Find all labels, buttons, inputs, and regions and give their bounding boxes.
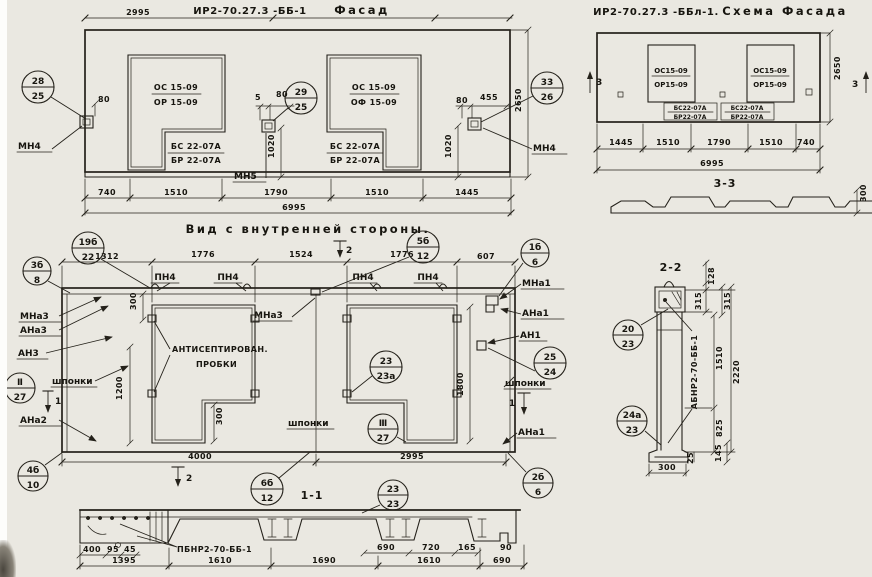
section-1-1-label: ПБНР2-70-ББ-1 (120, 524, 252, 554)
svg-text:1790: 1790 (264, 188, 288, 197)
svg-text:23: 23 (387, 500, 400, 510)
scheme-window-2: ОС15-09 ОР15-09 (747, 45, 794, 102)
callout-20-23: 20 23 (613, 309, 668, 350)
callout-29-25: 29 25 (273, 82, 317, 121)
scheme-dim-2650: 2650 (820, 30, 842, 125)
svg-text:4б: 4б (27, 465, 40, 476)
callout-2b-6: 2б 6 (508, 453, 553, 498)
svg-text:1200: 1200 (115, 376, 124, 400)
svg-text:1б: 1б (529, 242, 542, 253)
section-marker-1-right: 1 (509, 393, 530, 414)
svg-text:23а: 23а (377, 372, 396, 382)
svg-text:1510: 1510 (164, 188, 188, 197)
svg-text:2: 2 (186, 474, 192, 484)
svg-text:720: 720 (422, 543, 440, 552)
label-mna1: МНа1 (522, 279, 551, 289)
section-3-3-profile (611, 197, 872, 213)
svg-text:45: 45 (124, 545, 136, 554)
inner-title: Вид с внутренней стороны. (186, 222, 431, 236)
callout-28-25: 28 25 (22, 71, 86, 119)
facade-code: ИР2-70.27.3 -ББ-1 (193, 6, 306, 17)
svg-text:1445: 1445 (609, 138, 633, 147)
svg-text:2б: 2б (532, 472, 545, 483)
label-shponki-left: шпонки (52, 377, 93, 387)
inner-an1-anchor (477, 341, 486, 350)
left-labels: МНа3 АНа3 АН3 Ⅱ 27 шпонки 1 АНа2 (5, 297, 128, 441)
svg-text:23: 23 (387, 485, 400, 495)
facade-block1-label: БС 22-07А БР 22-07А (168, 142, 224, 165)
svg-text:300: 300 (658, 463, 676, 472)
facade-dim-80-left: 80 (98, 95, 110, 104)
svg-text:6б: 6б (261, 478, 274, 489)
svg-text:24а: 24а (623, 411, 642, 421)
svg-text:300: 300 (129, 292, 138, 310)
svg-text:1610: 1610 (417, 556, 441, 565)
section-marker-3-left: 3 (590, 72, 602, 93)
svg-text:300: 300 (859, 184, 868, 202)
section-2-2-loop (664, 282, 674, 288)
scheme-block-label-2: БС22-07А БР22-07А (721, 103, 774, 121)
svg-text:90: 90 (500, 543, 512, 552)
svg-text:ПРОБКИ: ПРОБКИ (196, 360, 237, 369)
svg-text:29: 29 (295, 88, 308, 98)
label-mn4-right: МН4 (533, 144, 556, 154)
svg-text:128: 128 (707, 267, 716, 285)
svg-text:ПН4: ПН4 (352, 273, 373, 283)
svg-text:690: 690 (377, 543, 395, 552)
scheme-window-1: ОС15-09 ОР15-09 (648, 45, 695, 102)
svg-text:23: 23 (626, 426, 639, 436)
facade-block2-label: БС 22-07А БР 22-07А (327, 142, 383, 165)
svg-text:БС22-07А: БС22-07А (674, 105, 707, 112)
corner-smudge (0, 540, 16, 577)
scheme-title: Схема Фасада (722, 4, 848, 18)
svg-text:22: 22 (82, 253, 95, 263)
label-shponki-mid: шпонки (288, 419, 329, 429)
svg-text:1: 1 (509, 399, 515, 409)
svg-text:25: 25 (295, 103, 308, 113)
label-ana1-bottom: АНа1 (518, 428, 545, 438)
facade-win2-label-bottom: ОФ 15-09 (351, 98, 397, 107)
svg-text:27: 27 (14, 393, 27, 403)
svg-text:1776: 1776 (191, 250, 215, 259)
svg-text:165: 165 (458, 543, 476, 552)
svg-text:20: 20 (622, 325, 635, 335)
facade-dim-6995: 6995 (282, 203, 306, 212)
svg-text:315: 315 (694, 292, 703, 310)
svg-text:12: 12 (261, 494, 274, 504)
facade-dim-455: 455 (480, 93, 498, 102)
svg-text:27: 27 (377, 434, 390, 444)
label-mna3-left: МНа3 (20, 312, 49, 322)
facade-dim-5: 5 (255, 93, 261, 102)
svg-text:БС 22-07А: БС 22-07А (171, 142, 222, 151)
section-marker-2-top: 2 (334, 241, 352, 257)
svg-text:5б: 5б (417, 236, 430, 247)
svg-text:1020: 1020 (267, 134, 276, 158)
section-2-2-foot (649, 450, 688, 462)
scheme-anchor-dots (618, 89, 812, 97)
facade-win1-label-bottom: ОР 15-09 (154, 98, 198, 107)
svg-text:1524: 1524 (289, 250, 313, 259)
svg-text:1510: 1510 (759, 138, 783, 147)
inner-view: Вид с внутренней стороны. 1312 1776 1524… (5, 222, 566, 505)
svg-text:2650: 2650 (833, 56, 842, 80)
inner-dim-1800: 1800 (456, 304, 473, 444)
label-ana3-left: АНа3 (20, 326, 47, 336)
svg-text:ОС15-09: ОС15-09 (753, 67, 787, 75)
svg-text:19б: 19б (79, 237, 98, 248)
svg-text:28: 28 (32, 77, 45, 87)
window1-plug-marks (148, 315, 259, 397)
facade-dim-2650: 2650 (510, 27, 531, 180)
svg-text:25: 25 (544, 353, 557, 363)
svg-text:24: 24 (544, 368, 557, 378)
section-3-3-title: 3-3 (714, 177, 737, 190)
svg-text:1445: 1445 (455, 188, 479, 197)
svg-text:10: 10 (27, 481, 40, 491)
svg-text:400: 400 (83, 545, 101, 554)
label-ana2: АНа2 (20, 416, 47, 426)
right-labels: МНа1 АНа1 АН1 25 24 шпонки 1 (488, 279, 566, 444)
svg-text:23: 23 (622, 340, 635, 350)
section-marker-1-left: 1 (43, 391, 61, 412)
svg-text:1610: 1610 (208, 556, 232, 565)
section-2-2-top-block (655, 287, 685, 312)
svg-text:МНа3: МНа3 (254, 311, 283, 321)
svg-text:ОР15-09: ОР15-09 (753, 81, 787, 89)
section-marker-3-right: 3 (852, 72, 866, 93)
svg-text:2650: 2650 (514, 88, 523, 112)
scheme-code: ИР2-70.27.3 -ББл-1. (593, 7, 719, 18)
svg-text:3б: 3б (31, 260, 44, 271)
scheme-panel-outline (597, 33, 820, 122)
svg-text:1020: 1020 (444, 134, 453, 158)
svg-text:АБНР2-70-ББ-1: АБНР2-70-ББ-1 (690, 335, 699, 410)
svg-text:95: 95 (107, 545, 119, 554)
facade-dim-2995: 2995 (126, 8, 150, 17)
label-an3: АН3 (18, 349, 39, 359)
inner-dim-4000: 4000 (188, 452, 212, 461)
svg-text:АНТИСЕПТИРОВАН.: АНТИСЕПТИРОВАН. (172, 345, 268, 354)
label-ana1: АНа1 (522, 309, 549, 319)
section-2-2-wall (657, 312, 682, 450)
svg-text:1790: 1790 (707, 138, 731, 147)
svg-text:12: 12 (417, 252, 430, 262)
section-3-3: 3-3 300 (611, 177, 872, 216)
svg-text:Ⅱ: Ⅱ (17, 378, 23, 388)
callout-III-27: Ⅲ 27 (368, 414, 398, 444)
svg-text:ПБНР2-70-ББ-1: ПБНР2-70-ББ-1 (177, 545, 252, 554)
svg-text:607: 607 (477, 252, 495, 261)
inner-dim-2995: 2995 (400, 452, 424, 461)
svg-text:2: 2 (346, 246, 352, 256)
svg-text:БР22-07А: БР22-07А (731, 114, 764, 121)
blueprint-sheet: 2995 ИР2-70.27.3 -ББ-1 Фасад ОС 15-09 ОР… (0, 0, 872, 577)
label-mn5: МН5 (234, 172, 257, 182)
shponki-mid-group: шпонки Ⅲ 27 (287, 414, 406, 444)
svg-text:1690: 1690 (312, 556, 336, 565)
section-2-2-dims-bottom: 300 25 145 (646, 440, 730, 476)
label-mn4-left: МН4 (18, 142, 41, 152)
drawing-canvas: 2995 ИР2-70.27.3 -ББ-1 Фасад ОС 15-09 ОР… (0, 0, 872, 577)
facade-dim-80-right: 80 (456, 96, 468, 105)
inner-right-anchor-notch (486, 296, 498, 312)
svg-text:БР 22-07А: БР 22-07А (330, 156, 381, 165)
scheme-dims-bottom: 1445 1510 1790 1510 740 6995 (594, 124, 823, 173)
callout-II-27: Ⅱ 27 (5, 373, 35, 403)
svg-text:ПН4: ПН4 (217, 273, 238, 283)
svg-text:Ⅲ: Ⅲ (379, 419, 388, 429)
facade-dims-bottom: 740 1510 1790 1510 1445 6995 (82, 179, 514, 216)
svg-text:26: 26 (541, 93, 554, 103)
facade-win1-label-top: ОС 15-09 (154, 83, 198, 92)
svg-text:ПН4: ПН4 (154, 273, 175, 283)
svg-text:300: 300 (215, 407, 224, 425)
svg-text:145: 145 (714, 444, 723, 462)
label-mna3-mid: МНа3 (253, 298, 315, 321)
svg-text:25: 25 (32, 92, 45, 102)
svg-text:8: 8 (34, 276, 40, 286)
anchor-mn5: 5 80 (255, 90, 294, 132)
antiseptic-plugs-note: АНТИСЕПТИРОВАН. ПРОБКИ (154, 321, 268, 392)
svg-text:3: 3 (596, 78, 602, 88)
svg-text:6: 6 (535, 488, 541, 498)
label-an1: АН1 (520, 331, 541, 341)
callout-4b-10: 4б 10 (18, 452, 63, 491)
svg-text:1800: 1800 (456, 372, 465, 396)
svg-text:1510: 1510 (656, 138, 680, 147)
callout-24a-23: 24а 23 (617, 406, 661, 445)
svg-text:740: 740 (98, 188, 116, 197)
svg-text:1510: 1510 (715, 346, 724, 370)
svg-text:1510: 1510 (365, 188, 389, 197)
svg-text:690: 690 (493, 556, 511, 565)
inner-window-2 (343, 305, 461, 443)
callout-25-24: 25 24 (488, 347, 566, 379)
facade-title: Фасад (334, 3, 390, 17)
paper-edge (0, 0, 7, 577)
svg-text:25: 25 (686, 452, 695, 464)
section-marker-2-bottom: 2 (172, 467, 192, 486)
svg-text:825: 825 (715, 419, 724, 437)
facade-view: 2995 ИР2-70.27.3 -ББ-1 Фасад ОС 15-09 ОР… (17, 3, 567, 216)
svg-text:ОР15-09: ОР15-09 (654, 81, 688, 89)
section-1-1-dims-right: 690 720 165 90 (361, 543, 512, 556)
svg-text:БС22-07А: БС22-07А (731, 105, 764, 112)
section-3-3-dim-300: 300 (854, 184, 868, 216)
svg-text:ОС15-09: ОС15-09 (654, 67, 688, 75)
inner-dims-bottom: 4000 2995 (59, 452, 509, 466)
inner-dim-1200: 1200 (115, 344, 133, 446)
svg-text:БР 22-07А: БР 22-07А (171, 156, 222, 165)
inner-window-1 (148, 305, 259, 443)
inner-dim-300-w1: 300 (211, 402, 224, 444)
scheme-view: ИР2-70.27.3 -ББл-1. Схема Фасада ОС15-09… (590, 4, 866, 173)
svg-text:1395: 1395 (112, 556, 136, 565)
svg-text:23: 23 (380, 357, 393, 367)
scheme-block-label-1: БС22-07А БР22-07А (664, 103, 717, 121)
facade-win2-label-top: ОС 15-09 (352, 83, 396, 92)
scheme-dim-6995: 6995 (700, 159, 724, 168)
inner-dim-300-top: 300 (129, 291, 146, 323)
svg-text:3: 3 (852, 80, 858, 90)
svg-text:2220: 2220 (732, 360, 741, 384)
callout-23-23a: 23 23а (352, 351, 402, 392)
svg-text:БР22-07А: БР22-07А (674, 114, 707, 121)
svg-text:33: 33 (541, 78, 554, 88)
svg-text:6: 6 (532, 258, 538, 268)
svg-text:БС 22-07А: БС 22-07А (330, 142, 381, 151)
svg-text:740: 740 (797, 138, 815, 147)
section-2-2: 2-2 АБНР2-70-ББ-1 20 23 24а 23 (613, 260, 741, 476)
section-1-1-title: 1-1 (301, 489, 324, 502)
svg-text:1: 1 (55, 397, 61, 407)
section-2-2-title: 2-2 (660, 261, 683, 274)
svg-text:ПН4: ПН4 (417, 273, 438, 283)
callout-23-23: 23 23 (362, 480, 408, 513)
